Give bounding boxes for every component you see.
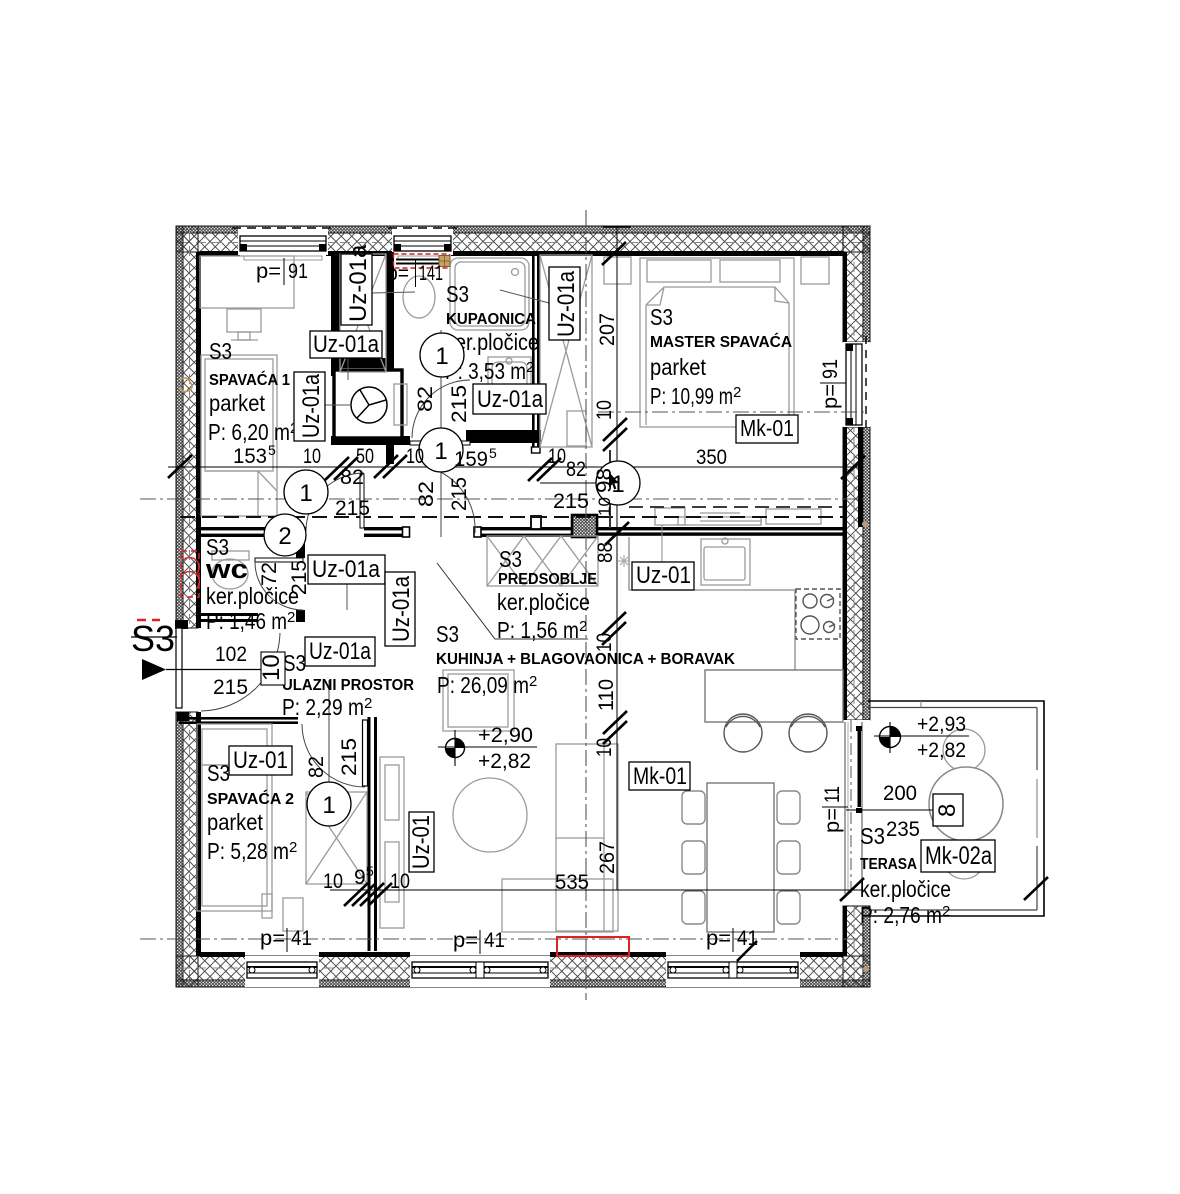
svg-text:ker.pločice: ker.pločice [860, 876, 951, 902]
svg-text:1: 1 [299, 480, 312, 507]
svg-text:215: 215 [448, 385, 471, 423]
svg-text:SPAVAĆA 1: SPAVAĆA 1 [209, 370, 290, 389]
svg-text:+2,82: +2,82 [917, 739, 966, 762]
svg-text:P: 6,20 m2: P: 6,20 m2 [208, 419, 298, 445]
svg-text:Uz-01: Uz-01 [233, 747, 288, 774]
svg-text:91: 91 [288, 260, 308, 283]
svg-text:p=: p= [387, 262, 409, 285]
svg-text:Uz-01a: Uz-01a [309, 638, 372, 665]
svg-text:P: 2,29 m2: P: 2,29 m2 [282, 694, 372, 720]
svg-text:2: 2 [278, 523, 291, 550]
svg-text:159: 159 [454, 448, 488, 471]
svg-text:102: 102 [215, 643, 247, 666]
svg-text:98: 98 [593, 468, 616, 493]
svg-text:parket: parket [650, 354, 707, 380]
svg-text:MASTER SPAVAĆA: MASTER SPAVAĆA [650, 332, 792, 351]
svg-text:Uz-01a: Uz-01a [298, 373, 325, 438]
svg-text:235: 235 [886, 818, 920, 841]
svg-text:350: 350 [696, 446, 727, 469]
svg-text:50: 50 [356, 445, 374, 468]
svg-text:p=: p= [819, 384, 842, 409]
svg-text:SPAVAĆA 2: SPAVAĆA 2 [207, 789, 294, 808]
svg-text:82: 82 [340, 466, 364, 489]
svg-text:82: 82 [415, 481, 438, 507]
svg-text:+2,90: +2,90 [478, 724, 533, 747]
svg-text:parket: parket [209, 390, 266, 416]
svg-text:p=: p= [821, 808, 844, 833]
svg-text:110: 110 [595, 679, 618, 711]
svg-text:82: 82 [414, 386, 437, 412]
svg-text:P: 1,46 m2: P: 1,46 m2 [206, 608, 295, 634]
svg-text:41: 41 [484, 929, 505, 952]
svg-text:141: 141 [419, 262, 443, 285]
svg-text:207: 207 [596, 313, 619, 346]
svg-text:+2,82: +2,82 [478, 750, 531, 773]
svg-text:p=: p= [256, 260, 281, 283]
svg-text:Uz-01a: Uz-01a [345, 244, 372, 322]
svg-text:wc: wc [205, 554, 248, 584]
svg-text:+2,93: +2,93 [917, 713, 966, 736]
svg-text:S3: S3 [499, 546, 522, 572]
svg-text:Uz-01a: Uz-01a [477, 386, 544, 413]
svg-text:P: 26,09 m2: P: 26,09 m2 [437, 672, 537, 698]
svg-text:ker.pločice: ker.pločice [206, 583, 299, 609]
svg-text:8: 8 [934, 804, 961, 817]
svg-text:535: 535 [555, 871, 589, 894]
svg-text:10: 10 [593, 400, 616, 420]
svg-text:10: 10 [593, 738, 616, 757]
svg-text:153: 153 [233, 445, 267, 468]
svg-text:P: 2,76 m2: P: 2,76 m2 [860, 902, 950, 928]
svg-text:Uz-01: Uz-01 [636, 562, 691, 589]
svg-text:P: 1,56 m2: P: 1,56 m2 [497, 617, 587, 643]
svg-text:215: 215 [553, 490, 589, 513]
svg-text:p=: p= [706, 927, 731, 950]
svg-text:10: 10 [323, 870, 343, 893]
svg-text:1: 1 [322, 792, 335, 819]
svg-text:S3: S3 [209, 338, 232, 364]
svg-text:215: 215 [448, 477, 471, 511]
svg-text:10: 10 [595, 497, 614, 516]
svg-text:Mk-01: Mk-01 [740, 415, 794, 441]
svg-text:Mk-01: Mk-01 [633, 763, 687, 790]
svg-text:267: 267 [596, 841, 619, 874]
svg-text:5: 5 [268, 442, 276, 458]
svg-text:Uz-01a: Uz-01a [388, 575, 415, 642]
svg-text:Mk-02a: Mk-02a [925, 842, 992, 870]
svg-text:10: 10 [258, 654, 285, 681]
svg-text:P: 5,28 m2: P: 5,28 m2 [207, 838, 297, 864]
svg-text:10: 10 [303, 445, 321, 468]
svg-text:S3: S3 [207, 760, 230, 786]
svg-text:Uz-01a: Uz-01a [313, 331, 380, 358]
svg-text:5: 5 [366, 863, 374, 879]
svg-text:72: 72 [258, 562, 281, 586]
svg-text:p=: p= [453, 929, 478, 952]
svg-text:TERASA: TERASA [860, 856, 917, 873]
svg-text:S3: S3 [860, 823, 885, 849]
svg-text:S3: S3 [283, 650, 306, 676]
svg-text:Uz-01: Uz-01 [408, 815, 435, 869]
svg-text:Uz-01a: Uz-01a [553, 270, 580, 337]
svg-text:41: 41 [291, 927, 312, 950]
svg-text:S3: S3 [650, 304, 673, 330]
svg-text:91: 91 [819, 359, 842, 379]
svg-text:ULAZNI PROSTOR: ULAZNI PROSTOR [282, 677, 414, 694]
svg-text:215: 215 [338, 738, 361, 776]
svg-text:1: 1 [435, 343, 448, 370]
svg-text:11: 11 [821, 786, 844, 803]
svg-text:82: 82 [305, 756, 328, 778]
svg-text:P: 10,99 m2: P: 10,99 m2 [650, 383, 741, 409]
svg-text:1: 1 [434, 438, 447, 465]
svg-text:82: 82 [566, 458, 586, 481]
svg-text:5: 5 [489, 445, 497, 461]
svg-text:200: 200 [883, 782, 917, 805]
svg-text:S3: S3 [436, 621, 459, 647]
svg-text:ker.pločice: ker.pločice [497, 589, 590, 615]
svg-text:S3: S3 [446, 281, 469, 307]
svg-text:9: 9 [354, 866, 366, 889]
svg-text:215: 215 [335, 497, 370, 520]
svg-text:41: 41 [737, 927, 758, 950]
svg-text:Uz-01a: Uz-01a [312, 556, 381, 583]
svg-text:S3: S3 [131, 618, 175, 659]
svg-text:KUHINJA + BLAGOVAONICA + BORAV: KUHINJA + BLAGOVAONICA + BORAVAK [436, 651, 735, 668]
svg-text:KUPAONICA: KUPAONICA [446, 311, 536, 328]
svg-text:10: 10 [406, 445, 424, 468]
svg-text:p=: p= [260, 927, 285, 950]
svg-text:10: 10 [593, 633, 616, 652]
svg-text:10: 10 [548, 445, 566, 468]
svg-text:parket: parket [207, 809, 264, 835]
svg-text:215: 215 [213, 676, 248, 699]
svg-text:PREDSOBLJE: PREDSOBLJE [498, 571, 597, 588]
svg-text:88: 88 [594, 542, 617, 563]
svg-text:10: 10 [390, 870, 410, 893]
